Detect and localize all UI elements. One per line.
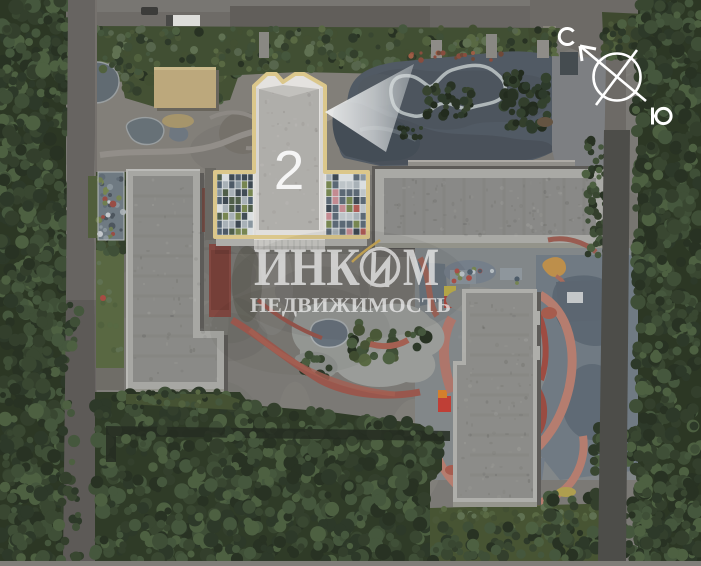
svg-text:НЕДВИЖИМОСТЬ: НЕДВИЖИМОСТЬ bbox=[250, 293, 451, 317]
svg-text:М: М bbox=[403, 237, 439, 297]
svg-text:ИНК: ИНК bbox=[254, 237, 360, 297]
